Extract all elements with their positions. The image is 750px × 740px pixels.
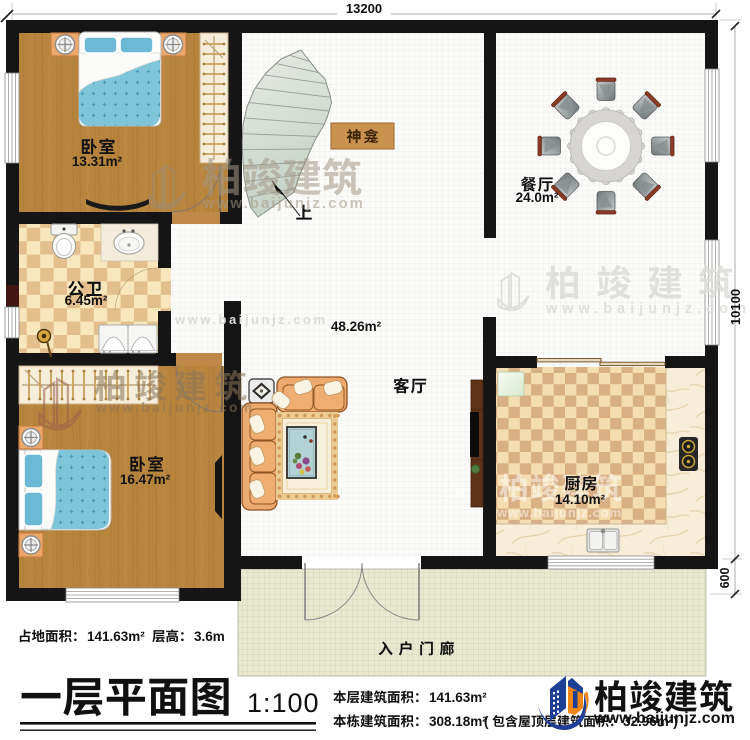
svg-text:www.baijunjz.com: www.baijunjz.com	[593, 710, 735, 727]
svg-text:www.baijunjz.com: www.baijunjz.com	[496, 505, 621, 520]
svg-text:(: (	[484, 714, 489, 729]
svg-text:13200: 13200	[346, 1, 382, 16]
svg-text:6.45m²: 6.45m²	[65, 293, 108, 308]
svg-text:141.63m²: 141.63m²	[429, 690, 487, 705]
svg-text:3.6m: 3.6m	[194, 629, 225, 644]
svg-text:308.18m²: 308.18m²	[429, 714, 487, 729]
svg-text:24.0m²: 24.0m²	[516, 190, 559, 205]
svg-text:10100: 10100	[728, 289, 743, 325]
svg-text:141.63m²: 141.63m²	[87, 629, 145, 644]
svg-text:14.10m²: 14.10m²	[555, 492, 606, 507]
svg-text:48.26m²: 48.26m²	[331, 319, 382, 334]
svg-text:16.47m²: 16.47m²	[120, 472, 171, 487]
svg-text:600: 600	[718, 568, 732, 589]
svg-text:1:100: 1:100	[247, 688, 320, 718]
svg-text:13.31m²: 13.31m²	[72, 154, 123, 169]
